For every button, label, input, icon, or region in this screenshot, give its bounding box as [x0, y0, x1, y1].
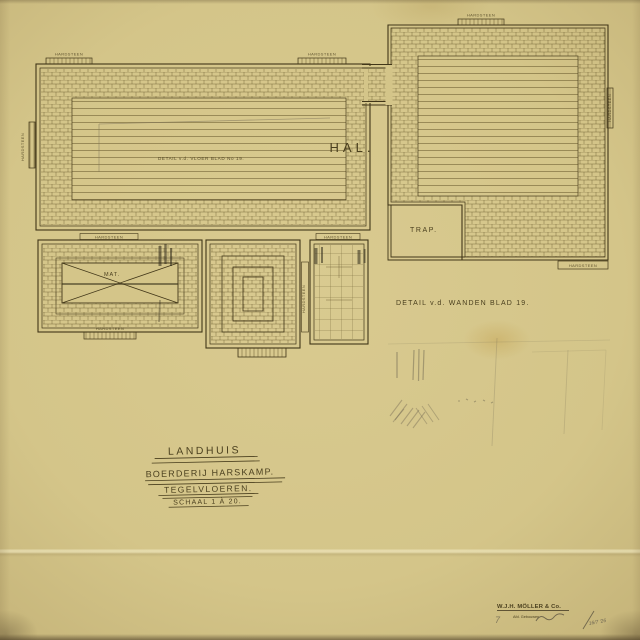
title-line-3: TEGELVLOEREN.: [164, 483, 253, 495]
threshold-label: HARDSTEEN: [308, 52, 336, 57]
threshold-label: HARDSTEEN: [324, 234, 352, 239]
scanned-drawing-sheet: DETAIL v.d. VLOER BLAD No 19. HAL. TRAP.…: [0, 0, 640, 640]
title-block: LANDHUIS BOERDERIJ HARSKAMP. TEGELVLOERE…: [144, 443, 285, 507]
threshold-label: HARDSTEEN: [467, 13, 495, 18]
stamp-block: W.J.H. MÖLLER & Co. Afd. Gebouwen 7 16/7…: [495, 603, 607, 629]
signature-squiggle: [536, 614, 564, 621]
threshold-label: HARDSTEEN: [95, 234, 123, 239]
room-vestibule: MAT.: [38, 240, 202, 332]
mat-label: MAT.: [104, 272, 120, 278]
floorplan-drawing: DETAIL v.d. VLOER BLAD No 19. HAL. TRAP.…: [0, 0, 640, 640]
title-line-1: LANDHUIS: [168, 444, 241, 458]
pencil-sketches: [388, 338, 610, 446]
threshold-label: HARDSTEEN: [569, 263, 597, 268]
room-middle: [206, 240, 300, 357]
wall-detail-note: DETAIL v.d. WANDEN BLAD 19.: [396, 300, 530, 307]
title-line-2: BOERDERIJ HARSKAMP.: [146, 467, 275, 480]
room-upper-right: [386, 25, 609, 260]
threshold-label: HARDSTEEN: [96, 326, 124, 331]
stamp-paraph: 7: [495, 615, 501, 625]
threshold-label: HARDSTEEN: [20, 133, 25, 161]
threshold-label: HARDSTEEN: [301, 285, 306, 313]
room-hal: DETAIL v.d. VLOER BLAD No 19. HAL.: [36, 64, 374, 230]
room-label-hal: HAL.: [330, 140, 375, 155]
stamp-department: Afd. Gebouwen: [513, 615, 539, 619]
room-label-trap: TRAP.: [410, 227, 438, 234]
stamp-company: W.J.H. MÖLLER & Co.: [497, 603, 561, 610]
threshold-label: HARDSTEEN: [607, 94, 612, 122]
stamp-signature: 16/7 '26: [588, 618, 607, 627]
room-trap-stairwell: TRAP.: [388, 205, 465, 260]
floor-detail-note: DETAIL v.d. VLOER BLAD No 19.: [158, 156, 244, 161]
threshold-label: HARDSTEEN: [55, 52, 83, 57]
